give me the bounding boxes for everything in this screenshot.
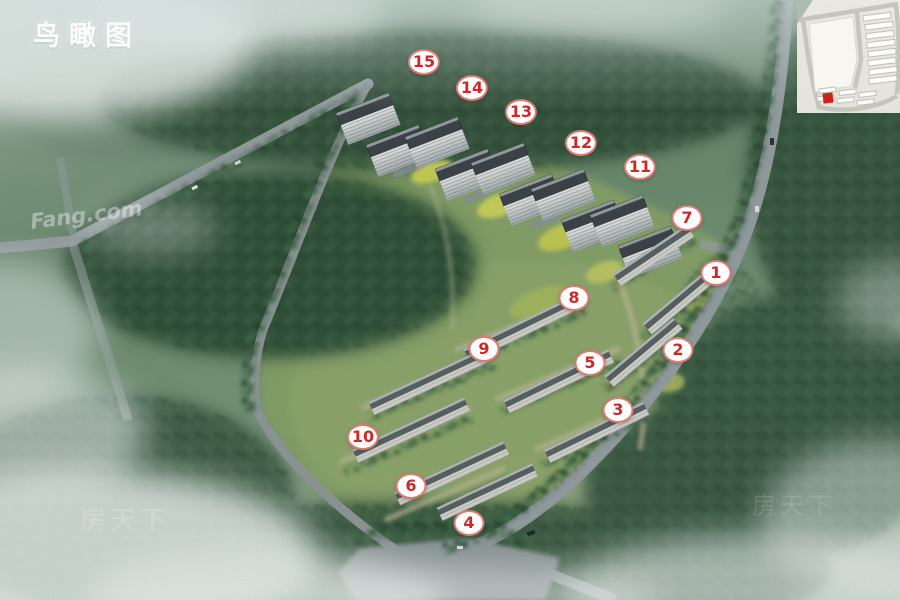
building-marker-14[interactable]: 14	[456, 75, 488, 101]
building-marker-2[interactable]: 2	[663, 337, 694, 363]
building-markers-layer: 123456789101112131415	[0, 0, 900, 600]
building-marker-8[interactable]: 8	[559, 285, 590, 311]
aerial-birdseye-view: 鸟瞰图 Fang.com 房天下 房天下 1234567891011121314…	[0, 0, 900, 600]
building-marker-13[interactable]: 13	[505, 99, 537, 125]
building-marker-11[interactable]: 11	[624, 154, 656, 180]
building-marker-5[interactable]: 5	[575, 350, 606, 376]
building-marker-15[interactable]: 15	[408, 49, 440, 75]
building-marker-9[interactable]: 9	[469, 336, 500, 362]
building-marker-6[interactable]: 6	[396, 473, 427, 499]
building-marker-12[interactable]: 12	[565, 130, 597, 156]
building-marker-7[interactable]: 7	[672, 205, 703, 231]
building-marker-10[interactable]: 10	[347, 424, 379, 450]
building-marker-1[interactable]: 1	[701, 260, 732, 286]
building-marker-4[interactable]: 4	[454, 510, 485, 536]
building-marker-3[interactable]: 3	[603, 397, 634, 423]
